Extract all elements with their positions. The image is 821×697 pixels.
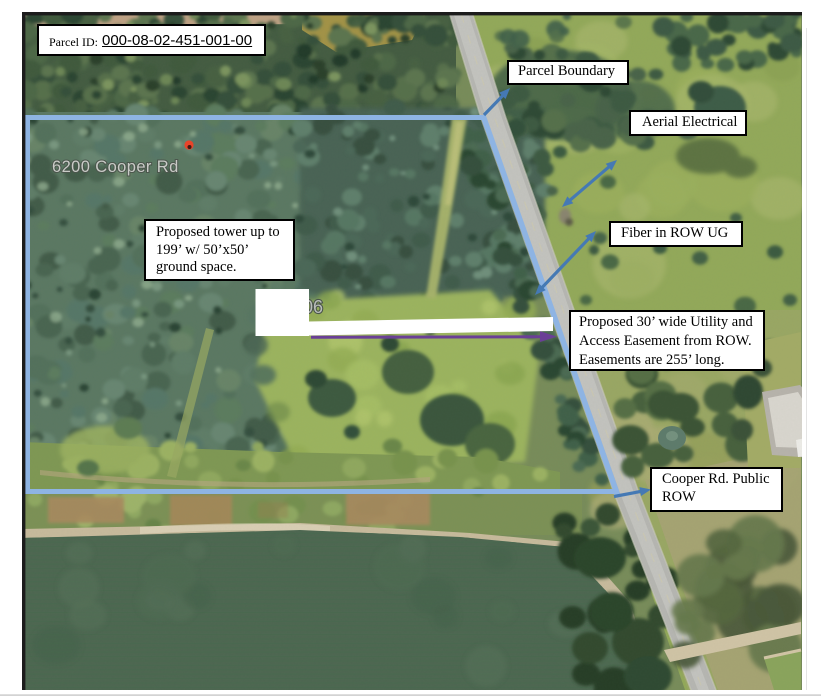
svg-text:6200 Cooper Rd: 6200 Cooper Rd [52, 158, 179, 176]
